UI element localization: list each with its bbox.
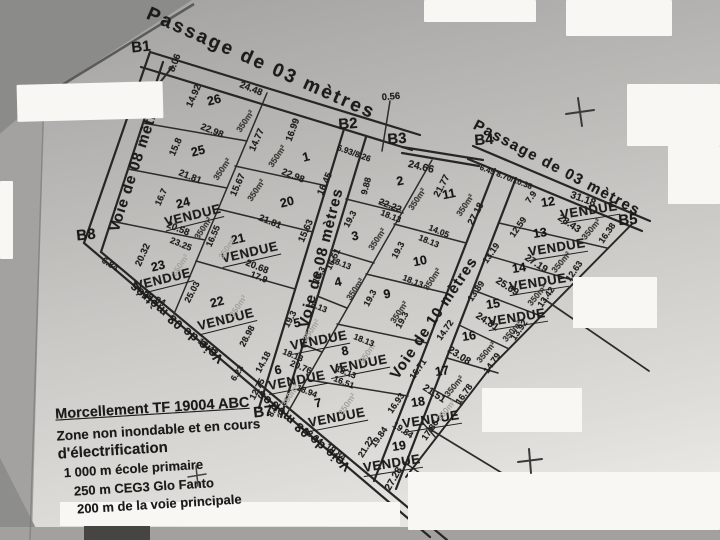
registration-marks xyxy=(0,0,720,540)
scanned-subdivision-plan: B1B2B3B4B5B7B8Passage de 03 mètresPassag… xyxy=(0,0,720,540)
